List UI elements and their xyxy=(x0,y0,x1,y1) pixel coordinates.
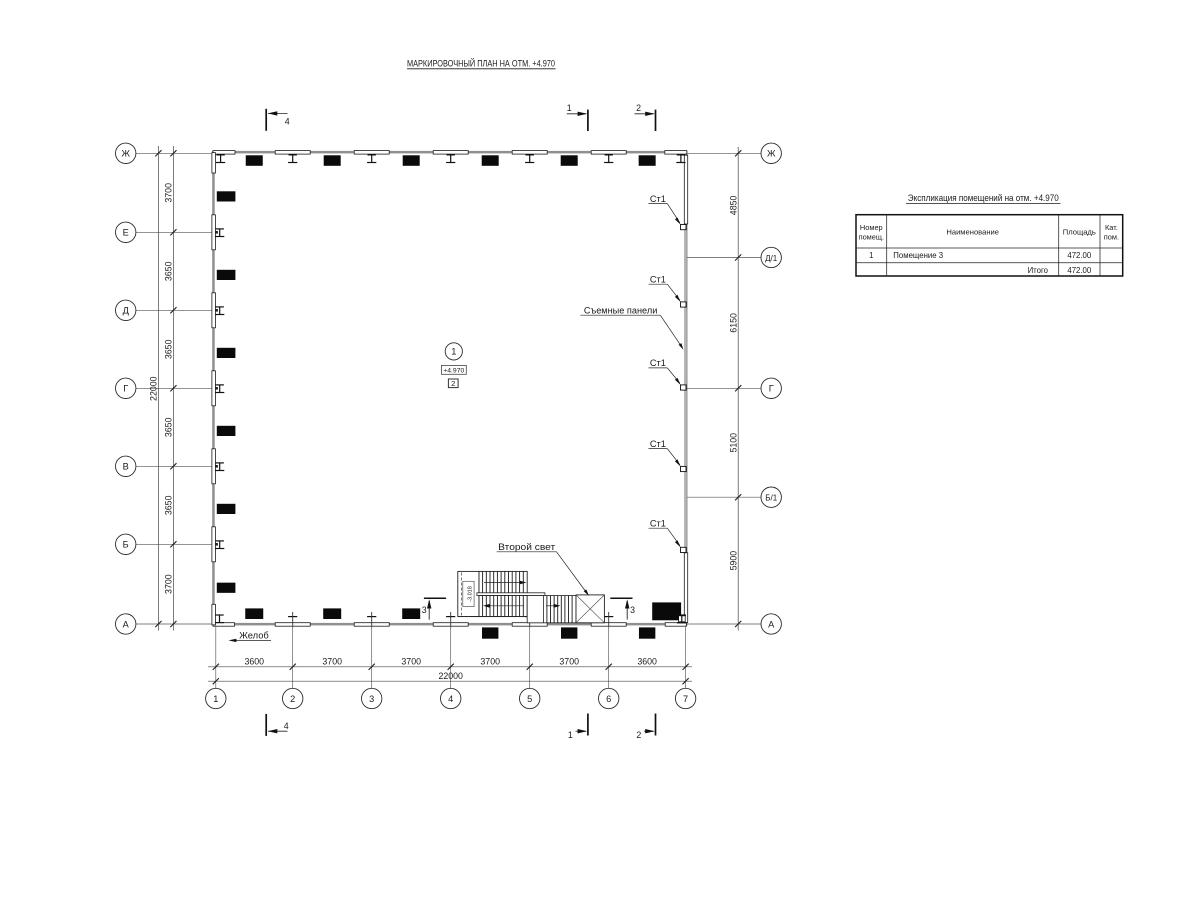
svg-text:помещ.: помещ. xyxy=(859,233,884,242)
svg-text:-3.018: -3.018 xyxy=(467,586,473,602)
svg-text:Е: Е xyxy=(123,228,129,238)
svg-text:Ж: Ж xyxy=(767,149,776,159)
svg-text:Желоб: Желоб xyxy=(239,630,269,640)
svg-text:6: 6 xyxy=(606,694,611,704)
svg-text:7: 7 xyxy=(683,694,688,704)
svg-text:МАРКИРОВОЧНЫЙ ПЛАН НА ОТМ. +4.: МАРКИРОВОЧНЫЙ ПЛАН НА ОТМ. +4.970 xyxy=(407,57,555,69)
svg-text:3700: 3700 xyxy=(164,574,174,594)
svg-text:22000: 22000 xyxy=(148,376,158,401)
svg-text:Д: Д xyxy=(123,306,130,316)
svg-text:1: 1 xyxy=(568,730,573,740)
svg-text:Б/1: Б/1 xyxy=(765,494,777,503)
svg-text:3600: 3600 xyxy=(637,657,657,667)
svg-text:3700: 3700 xyxy=(480,657,500,667)
svg-text:Ст1: Ст1 xyxy=(650,519,666,529)
svg-text:5: 5 xyxy=(527,694,532,704)
svg-text:Номер: Номер xyxy=(860,223,883,232)
svg-text:3650: 3650 xyxy=(164,417,174,437)
svg-text:3: 3 xyxy=(630,605,635,615)
svg-text:Площадь: Площадь xyxy=(1063,228,1096,237)
svg-text:3700: 3700 xyxy=(401,657,421,667)
svg-text:3600: 3600 xyxy=(244,657,264,667)
svg-text:2: 2 xyxy=(451,379,455,388)
svg-text:472.00: 472.00 xyxy=(1067,266,1092,275)
svg-text:3650: 3650 xyxy=(164,495,174,515)
svg-text:3700: 3700 xyxy=(322,657,342,667)
svg-text:3700: 3700 xyxy=(559,657,579,667)
svg-text:В: В xyxy=(123,462,129,472)
svg-text:Помещение 3: Помещение 3 xyxy=(893,251,943,260)
svg-text:3: 3 xyxy=(422,605,427,615)
svg-text:3: 3 xyxy=(369,694,374,704)
svg-text:Экспликация помещений на отм.: Экспликация помещений на отм. +4.970 xyxy=(908,193,1059,204)
svg-text:4: 4 xyxy=(285,116,290,126)
svg-text:Второй свет: Второй свет xyxy=(498,542,555,552)
svg-text:Ст1: Ст1 xyxy=(650,275,666,285)
svg-text:4: 4 xyxy=(448,694,453,704)
svg-text:Наименование: Наименование xyxy=(946,228,999,237)
svg-text:4: 4 xyxy=(284,721,289,731)
svg-text:Ст1: Ст1 xyxy=(650,194,666,204)
svg-text:+4.970: +4.970 xyxy=(443,368,464,375)
svg-text:Г: Г xyxy=(123,384,128,394)
svg-text:А: А xyxy=(768,619,775,629)
svg-text:22000: 22000 xyxy=(438,671,463,681)
svg-text:Съемные панели: Съемные панели xyxy=(584,305,658,315)
svg-text:Б: Б xyxy=(123,540,129,550)
svg-text:5100: 5100 xyxy=(729,433,739,453)
svg-text:3650: 3650 xyxy=(164,261,174,281)
svg-text:Ст1: Ст1 xyxy=(650,358,666,368)
svg-text:5900: 5900 xyxy=(729,551,739,571)
svg-text:2: 2 xyxy=(290,694,295,704)
svg-text:1: 1 xyxy=(213,694,218,704)
svg-text:Итого: Итого xyxy=(1028,266,1049,275)
svg-text:1: 1 xyxy=(567,103,572,113)
svg-text:1: 1 xyxy=(451,347,456,357)
svg-text:4850: 4850 xyxy=(729,196,739,216)
svg-text:6150: 6150 xyxy=(729,313,739,333)
svg-text:3650: 3650 xyxy=(164,339,174,359)
svg-text:пом.: пом. xyxy=(1104,233,1119,242)
svg-text:472.00: 472.00 xyxy=(1067,251,1092,260)
svg-text:Ж: Ж xyxy=(121,149,130,159)
svg-text:2: 2 xyxy=(636,103,641,113)
svg-text:Д/1: Д/1 xyxy=(765,254,778,263)
svg-text:Г: Г xyxy=(769,384,774,394)
svg-text:А: А xyxy=(123,619,130,629)
svg-text:3700: 3700 xyxy=(164,183,174,203)
svg-text:Ст1: Ст1 xyxy=(650,439,666,449)
svg-text:Кат.: Кат. xyxy=(1105,223,1118,232)
svg-text:2: 2 xyxy=(636,730,641,740)
svg-text:1: 1 xyxy=(869,251,873,260)
